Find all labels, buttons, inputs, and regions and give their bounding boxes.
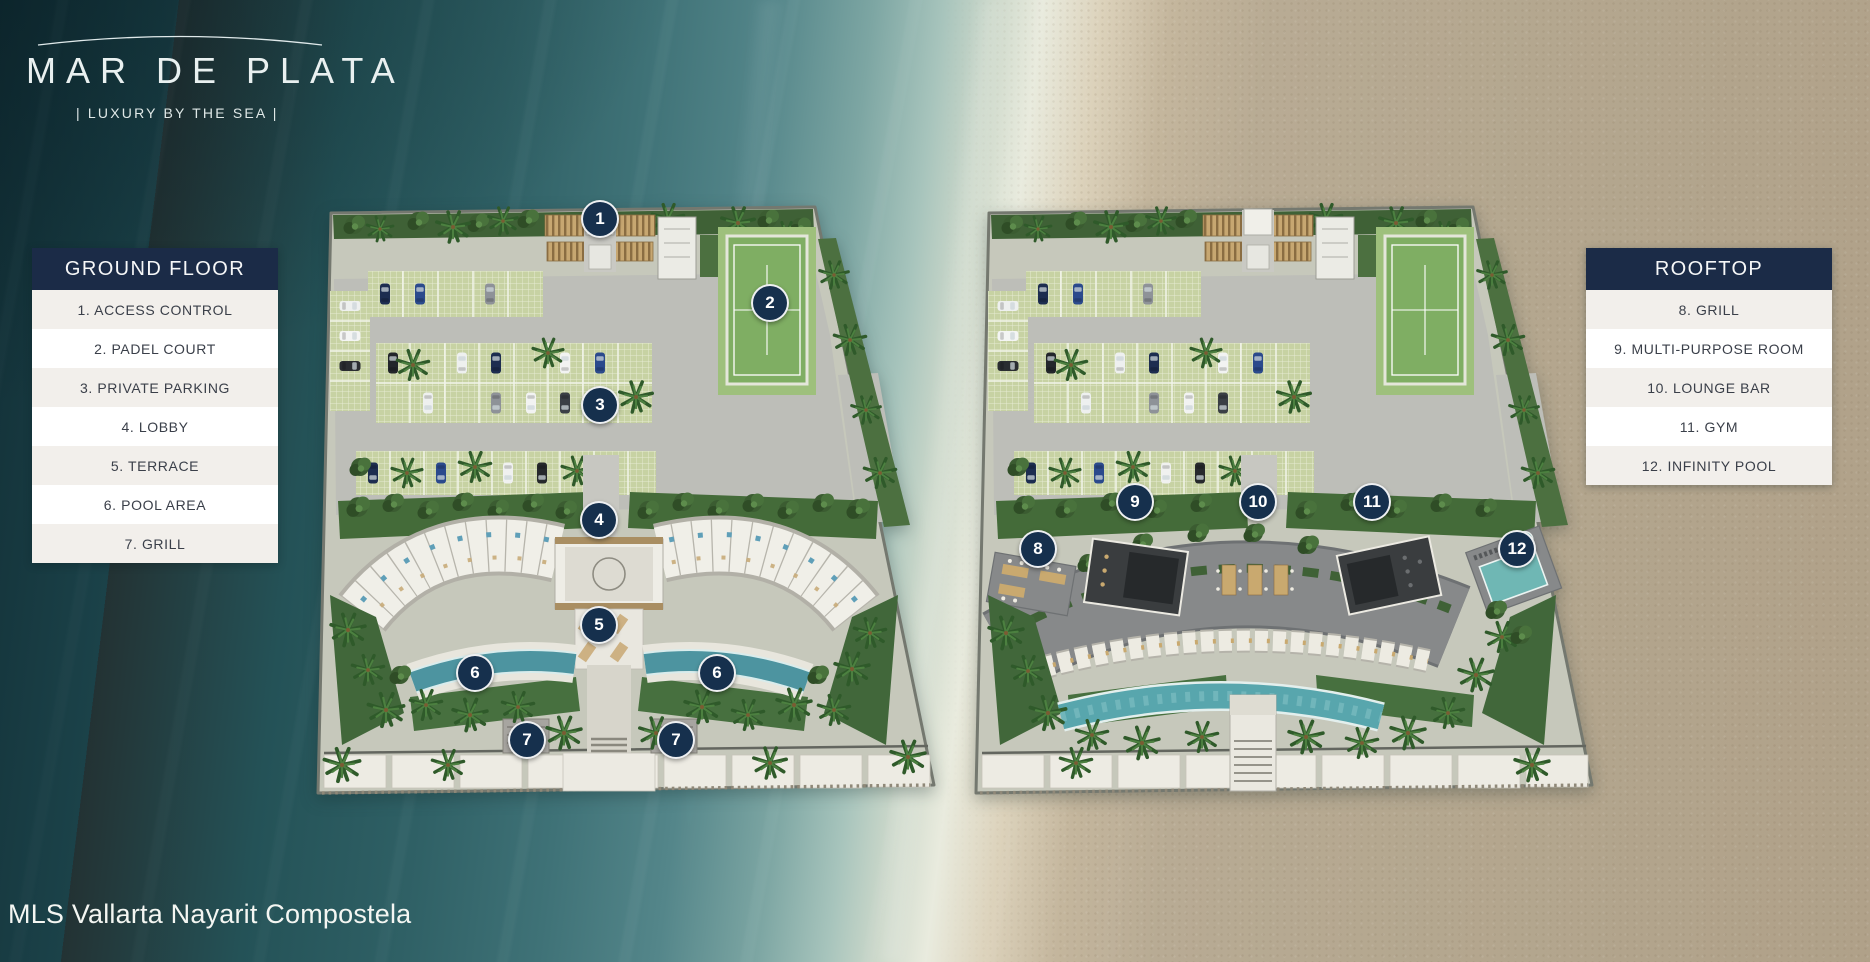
plan-marker-7: 7	[508, 721, 546, 759]
plan-marker-2: 2	[751, 284, 789, 322]
legend-item-11: 11. GYM	[1586, 407, 1832, 446]
plan-marker-4: 4	[580, 501, 618, 539]
legend-item-1: 1. ACCESS CONTROL	[32, 290, 278, 329]
plan-marker-7: 7	[657, 721, 695, 759]
rooftop-plan	[976, 205, 1592, 793]
brochure-canvas: 12345667789101112 MAR DE PLATA | LUXURY …	[0, 0, 1870, 962]
plan-marker-12: 12	[1498, 530, 1536, 568]
plan-marker-6: 6	[456, 654, 494, 692]
central-staircase	[1230, 695, 1276, 791]
legend-item-8: 8. GRILL	[1586, 290, 1832, 329]
legend-rooftop: ROOFTOP 8. GRILL9. MULTI-PURPOSE ROOM10.…	[1586, 248, 1832, 485]
plan-marker-3: 3	[581, 386, 619, 424]
legend-ground-floor-title: GROUND FLOOR	[32, 248, 278, 290]
legend-item-12: 12. INFINITY POOL	[1586, 446, 1832, 485]
plan-marker-6: 6	[698, 654, 736, 692]
legend-item-5: 5. TERRACE	[32, 446, 278, 485]
plan-marker-8: 8	[1019, 530, 1057, 568]
footer-credit: MLS Vallarta Nayarit Compostela	[8, 899, 411, 930]
legend-item-4: 4. LOBBY	[32, 407, 278, 446]
lounge-bar	[1216, 565, 1294, 595]
beach-access-path	[587, 665, 631, 757]
legend-ground-floor: GROUND FLOOR 1. ACCESS CONTROL2. PADEL C…	[32, 248, 278, 563]
plan-marker-9: 9	[1116, 483, 1154, 521]
plan-marker-1: 1	[581, 200, 619, 238]
brand-name: MAR DE PLATA	[26, 50, 346, 92]
plan-marker-10: 10	[1239, 483, 1277, 521]
legend-ground-floor-rows: 1. ACCESS CONTROL2. PADEL COURT3. PRIVAT…	[32, 290, 278, 563]
legend-rooftop-title: ROOFTOP	[1586, 248, 1832, 290]
legend-item-3: 3. PRIVATE PARKING	[32, 368, 278, 407]
legend-item-10: 10. LOUNGE BAR	[1586, 368, 1832, 407]
brand-block: MAR DE PLATA | LUXURY BY THE SEA |	[26, 26, 346, 121]
multi-purpose-room	[1084, 539, 1188, 616]
legend-rooftop-rows: 8. GRILL9. MULTI-PURPOSE ROOM10. LOUNGE …	[1586, 290, 1832, 485]
legend-item-2: 2. PADEL COURT	[32, 329, 278, 368]
plan-marker-5: 5	[580, 606, 618, 644]
plan-marker-11: 11	[1353, 483, 1391, 521]
legend-item-6: 6. POOL AREA	[32, 485, 278, 524]
lobby-plaza	[555, 537, 663, 610]
legend-item-7: 7. GRILL	[32, 524, 278, 563]
brand-arc-icon	[32, 26, 328, 48]
legend-item-9: 9. MULTI-PURPOSE ROOM	[1586, 329, 1832, 368]
brand-tagline: | LUXURY BY THE SEA |	[26, 105, 346, 121]
ground-floor-plan	[318, 205, 934, 793]
